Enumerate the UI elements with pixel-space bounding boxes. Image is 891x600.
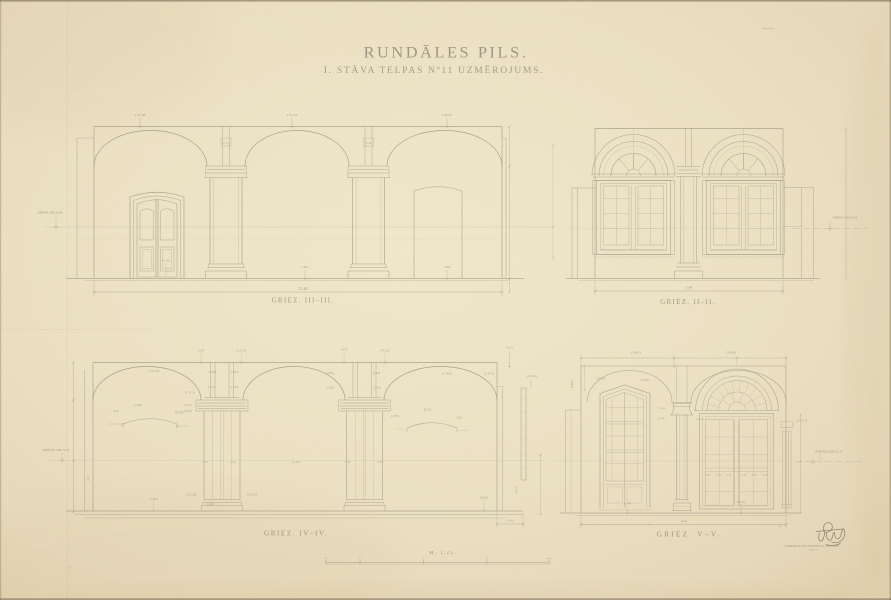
svg-text:(0.56): (0.56) <box>175 412 182 415</box>
svg-text:(1.10): (1.10) <box>292 461 299 464</box>
svg-text:3 m: 3 m <box>547 557 551 560</box>
svg-text:1.16: 1.16 <box>202 461 208 464</box>
svg-text:(2.14.4): (2.14.4) <box>484 373 494 376</box>
svg-text:+2.15: +2.15 <box>506 347 514 350</box>
svg-text:0.56: 0.56 <box>457 417 463 420</box>
svg-text:(1.70.6): (1.70.6) <box>442 373 452 376</box>
svg-text:(1.52): (1.52) <box>206 503 213 506</box>
svg-text:GRĪDAS LĪM.±0.00: GRĪDAS LĪM.±0.00 <box>38 212 63 215</box>
svg-text:1.16: 1.16 <box>377 461 383 464</box>
svg-text:(0.11): (0.11) <box>424 409 431 412</box>
svg-text:(1.02.5): (1.02.5) <box>183 410 193 413</box>
svg-text:0.46: 0.46 <box>727 475 732 477</box>
svg-text:0.46: 0.46 <box>706 475 711 477</box>
svg-text:(1.17.5): (1.17.5) <box>185 392 195 395</box>
svg-text:1.39.6: 1.39.6 <box>209 371 217 374</box>
svg-text:(1.43): (1.43) <box>373 387 380 390</box>
svg-text:GRIEZ. II–II.: GRIEZ. II–II. <box>660 298 716 306</box>
svg-text:GRIEZ. V–V.: GRIEZ. V–V. <box>657 530 722 539</box>
svg-text:1.04: 1.04 <box>507 520 513 523</box>
svg-text:1.50.87: 1.50.87 <box>442 113 453 117</box>
svg-text:(0.41): (0.41) <box>658 417 665 420</box>
svg-text:0.56: 0.56 <box>113 410 119 413</box>
svg-text:0.46: 0.46 <box>752 475 757 477</box>
svg-text:(1.05): (1.05) <box>184 404 191 407</box>
svg-text:(2.05): (2.05) <box>391 415 398 418</box>
svg-text:(74.08): (74.08) <box>726 352 735 355</box>
svg-text:RUNDĀLES PILS.: RUNDĀLES PILS. <box>364 43 529 62</box>
svg-text:(0.94): (0.94) <box>480 497 487 500</box>
svg-text:(1.06): (1.06) <box>326 372 333 375</box>
svg-text:(1.41.5): (1.41.5) <box>237 350 247 353</box>
svg-text:18.74: 18.74 <box>341 349 348 352</box>
svg-text:(0.60.5): (0.60.5) <box>515 486 518 494</box>
svg-text:(74.12): (74.12) <box>381 350 390 353</box>
svg-text:1.14: 1.14 <box>230 461 236 464</box>
svg-text:0.74: 0.74 <box>223 142 229 145</box>
svg-text:±1.46: ±1.46 <box>624 503 631 506</box>
svg-text:1.51.44: 1.51.44 <box>287 113 298 117</box>
svg-text:1.43.4: 1.43.4 <box>208 386 216 389</box>
svg-text:13.74: 13.74 <box>198 350 205 353</box>
svg-text:(1.07.5): (1.07.5) <box>797 420 807 423</box>
svg-text:5.88: 5.88 <box>686 286 693 290</box>
svg-text:(3.64.5): (3.64.5) <box>631 352 641 355</box>
svg-text:I. STĀVA TELPAS Nº11 UZMĒROJUM: I. STĀVA TELPAS Nº11 UZMĒROJUMS. <box>324 65 545 76</box>
svg-text:(2.08): (2.08) <box>134 404 141 407</box>
svg-text:PANELES LĪM.+1.10: PANELES LĪM.+1.10 <box>43 449 70 452</box>
svg-text:0.46: 0.46 <box>742 475 747 477</box>
svg-text:M. 1:25.: M. 1:25. <box>429 551 457 556</box>
svg-text:(1.37.6): (1.37.6) <box>187 494 197 497</box>
svg-text:1.564: 1.564 <box>443 266 451 269</box>
svg-text:(0.94): (0.94) <box>373 372 380 375</box>
svg-text:1.431: 1.431 <box>301 266 309 269</box>
svg-text:(1.43): (1.43) <box>326 387 333 390</box>
svg-text:(1.37.4): (1.37.4) <box>248 494 258 497</box>
svg-text:6.42: 6.42 <box>681 519 687 523</box>
svg-text:11.44: 11.44 <box>298 287 307 291</box>
svg-text:PĀRTERA LĪM.+1.10: PĀRTERA LĪM.+1.10 <box>816 451 843 454</box>
svg-text:1.14: 1.14 <box>345 461 351 464</box>
svg-text:0.74: 0.74 <box>366 142 372 145</box>
svg-text:(2.26): (2.26) <box>597 377 604 380</box>
svg-text:(74.0): (74.0) <box>737 501 744 504</box>
svg-text:GRIEZ. III–III.: GRIEZ. III–III. <box>272 297 335 305</box>
svg-text:0.46: 0.46 <box>763 475 768 477</box>
svg-text:(1.31.6): (1.31.6) <box>527 375 537 378</box>
svg-text:1.73.1.40: 1.73.1.40 <box>148 370 160 373</box>
svg-text:(2.08.5): (2.08.5) <box>571 380 574 388</box>
svg-text:GRIEZ. IV–IV.: GRIEZ. IV–IV. <box>264 530 328 538</box>
svg-text:±1.38: ±1.38 <box>162 260 170 263</box>
svg-text:1952. G.: 1952. G. <box>809 549 819 552</box>
svg-text:±1.38.7: ±1.38.7 <box>149 498 159 501</box>
svg-text:(1.05): (1.05) <box>658 407 665 410</box>
svg-text:(0.54): (0.54) <box>641 379 648 382</box>
svg-text:1.43.2: 1.43.2 <box>231 386 239 389</box>
svg-text:(0.97): (0.97) <box>87 475 90 481</box>
svg-text:1.51.38: 1.51.38 <box>135 113 146 117</box>
svg-text:GRĪDAS LĪM.±0.00: GRĪDAS LĪM.±0.00 <box>833 217 858 220</box>
svg-text:0.46: 0.46 <box>716 475 721 477</box>
svg-text:1.39.4: 1.39.4 <box>231 371 239 374</box>
